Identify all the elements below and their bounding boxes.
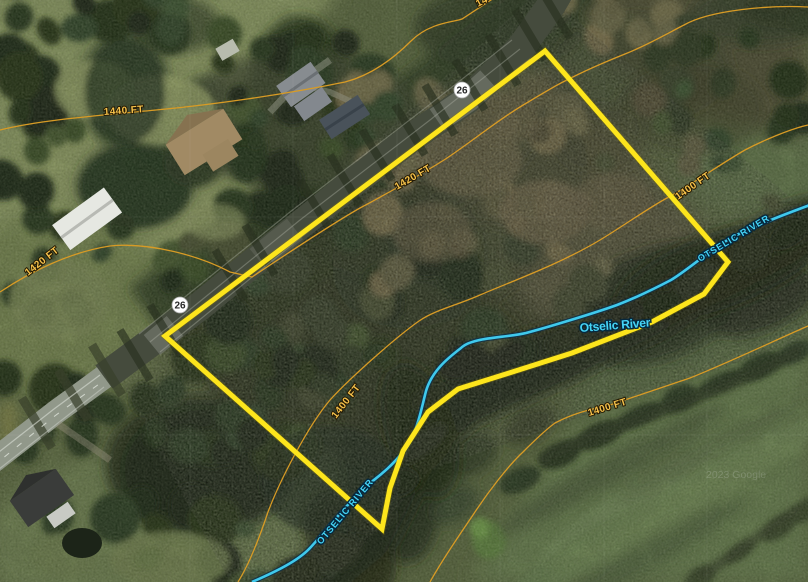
svg-text:26: 26 [456,85,468,96]
svg-text:26: 26 [174,300,186,311]
svg-text:2023 Google: 2023 Google [706,469,766,481]
